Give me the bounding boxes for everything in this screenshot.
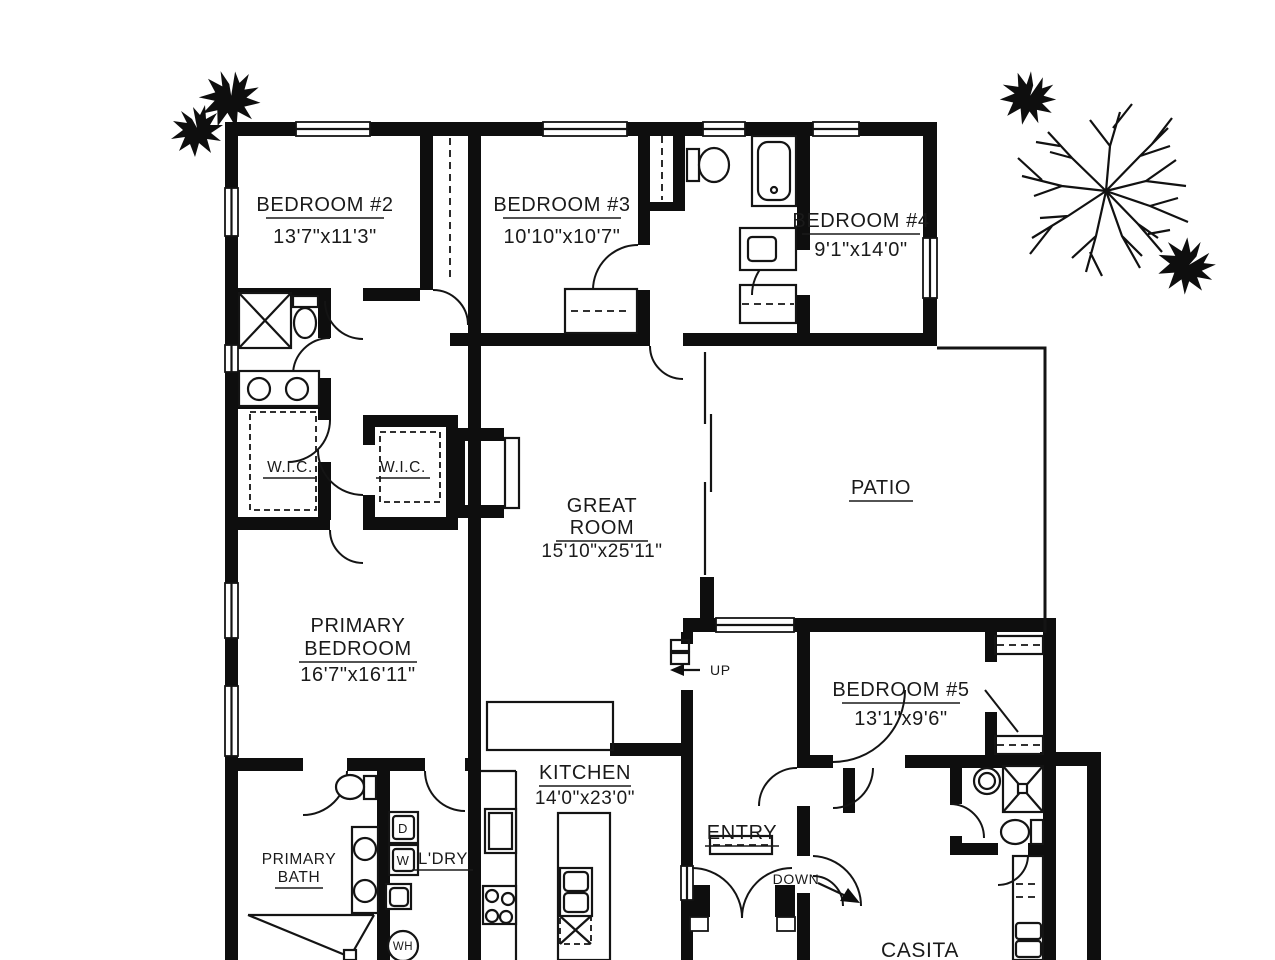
door-arc bbox=[650, 346, 683, 379]
stair-up-label: UP bbox=[710, 662, 731, 678]
room-label-bedroom4: BEDROOM #4 bbox=[792, 210, 929, 232]
room-label-kitchen: KITCHEN bbox=[539, 762, 631, 784]
stairs-down bbox=[813, 856, 861, 906]
shower bbox=[1003, 766, 1043, 812]
room-label-great-room-2: ROOM bbox=[570, 517, 635, 539]
closet bbox=[995, 736, 1043, 754]
door-arc bbox=[433, 290, 468, 325]
dryer-label: D bbox=[398, 821, 408, 836]
room-dims-primary-bedroom: 16'7"x16'11" bbox=[300, 664, 415, 686]
kitchen-island bbox=[558, 813, 610, 960]
sink bbox=[974, 768, 1000, 794]
bush-icon bbox=[171, 105, 223, 157]
door-arc bbox=[330, 530, 363, 563]
room-label-primary-bedroom-1: PRIMARY bbox=[311, 615, 406, 637]
shower bbox=[248, 915, 374, 960]
toilet bbox=[687, 148, 729, 182]
floor-plan-drawing: BEDROOM #2 13'7"x11'3" BEDROOM #3 10'10"… bbox=[0, 0, 1275, 960]
bush-icon bbox=[989, 59, 1066, 136]
room-dims-bedroom3: 10'10"x10'7" bbox=[504, 226, 621, 248]
room-label-great-room-1: GREAT bbox=[567, 495, 637, 517]
room-dims-bedroom5: 13'1"x9'6" bbox=[854, 708, 947, 730]
room-label-bedroom2: BEDROOM #2 bbox=[256, 194, 393, 216]
room-dims-bedroom4: 9'1"x14'0" bbox=[814, 239, 907, 261]
closet bbox=[995, 636, 1043, 654]
room-label-wic1: W.I.C. bbox=[267, 459, 313, 476]
room-label-wic2: W.I.C. bbox=[380, 459, 426, 476]
dishwasher bbox=[560, 916, 591, 944]
room-label-bedroom3: BEDROOM #3 bbox=[493, 194, 630, 216]
door-arc bbox=[425, 771, 465, 811]
window bbox=[225, 345, 238, 372]
door-arc bbox=[950, 804, 984, 838]
room-label-casita: CASITA bbox=[881, 939, 959, 960]
toilet bbox=[336, 775, 376, 799]
room-label-entry: ENTRY bbox=[707, 822, 777, 844]
patio-outline bbox=[937, 348, 1045, 633]
fridge bbox=[485, 809, 516, 853]
window bbox=[296, 122, 370, 136]
laundry-sink bbox=[386, 884, 411, 909]
room-label-primary-bath-1: PRIMARY bbox=[262, 851, 337, 868]
window bbox=[716, 618, 794, 632]
closet bbox=[565, 289, 637, 333]
door-arc bbox=[293, 338, 330, 375]
room-label-primary-bath-2: BATH bbox=[278, 869, 321, 886]
sliding-glass-door bbox=[705, 352, 711, 575]
window bbox=[225, 686, 238, 756]
closet bbox=[740, 285, 796, 323]
vanity-double-sink bbox=[352, 827, 378, 913]
casita-kitchenette bbox=[1013, 856, 1043, 960]
room-dims-great-room: 15'10"x25'11" bbox=[541, 541, 662, 562]
bush-icon bbox=[1149, 229, 1222, 302]
door-arc bbox=[759, 768, 797, 806]
cooktop bbox=[483, 886, 516, 924]
window bbox=[681, 866, 693, 900]
vanity-double-sink bbox=[239, 371, 319, 406]
window bbox=[225, 188, 238, 236]
room-label-patio: PATIO bbox=[851, 477, 911, 499]
window bbox=[543, 122, 627, 136]
tree bbox=[1018, 104, 1188, 276]
room-label-laundry: L'DRY bbox=[418, 850, 468, 868]
stairs-up bbox=[670, 640, 700, 676]
media-niche bbox=[505, 438, 519, 508]
room-label-primary-bedroom-2: BEDROOM bbox=[304, 638, 412, 660]
room-dims-kitchen: 14'0"x23'0" bbox=[535, 788, 635, 809]
window bbox=[813, 122, 859, 136]
bathtub bbox=[752, 136, 796, 206]
room-label-bedroom5: BEDROOM #5 bbox=[832, 679, 969, 701]
sink-vanity bbox=[740, 228, 796, 270]
stair-down-label: DOWN bbox=[773, 871, 820, 887]
floor-plan: BEDROOM #2 13'7"x11'3" BEDROOM #3 10'10"… bbox=[0, 0, 1275, 960]
toilet bbox=[1001, 820, 1043, 844]
window bbox=[225, 583, 238, 638]
door-arc bbox=[288, 420, 330, 462]
toilet bbox=[293, 296, 318, 338]
water-heater-label: WH bbox=[393, 941, 413, 953]
room-dims-bedroom2: 13'7"x11'3" bbox=[273, 226, 377, 248]
window bbox=[703, 122, 745, 136]
door-arc bbox=[593, 245, 638, 290]
shower bbox=[239, 293, 291, 348]
washer-label: W bbox=[397, 853, 410, 868]
window bbox=[923, 238, 937, 298]
